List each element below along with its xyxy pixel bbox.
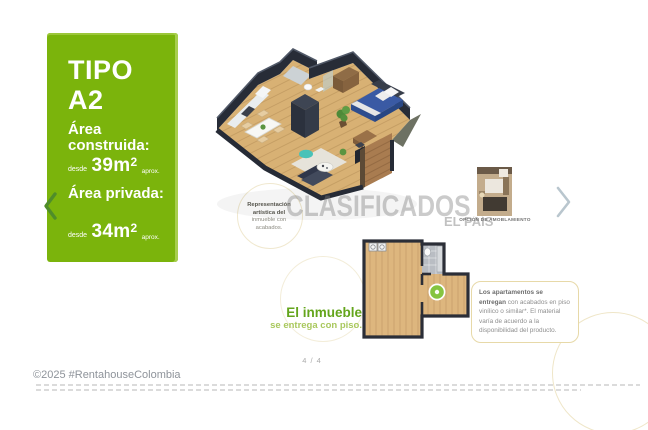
next-slide-button[interactable] bbox=[554, 185, 574, 224]
private-area-label: Área privada: bbox=[68, 186, 176, 202]
private-area-value: desde 34m2 aprox. bbox=[68, 221, 160, 243]
prev-slide-button[interactable] bbox=[42, 191, 58, 226]
hotspot-marker-icon[interactable] bbox=[429, 284, 446, 301]
unit-type-value: A2 bbox=[68, 85, 104, 116]
chevron-left-icon bbox=[42, 191, 58, 221]
copyright-text: ©2025 #RentahouseColombia bbox=[33, 369, 181, 381]
slide-pagination: 4 / 4 bbox=[286, 356, 338, 365]
gallery-slide: TIPO A2 Área construida: desde 39m2 apro… bbox=[0, 0, 648, 430]
furnishing-option-thumbnail[interactable] bbox=[477, 167, 512, 216]
unit-type-label: TIPO bbox=[68, 55, 133, 86]
built-area-value: desde 39m2 aprox. bbox=[68, 155, 160, 177]
furnished-room-photo bbox=[477, 167, 512, 216]
unit-info-panel: TIPO A2 Área construida: desde 39m2 apro… bbox=[47, 33, 178, 262]
finishes-callout: Los apartamentos se entregan con acabado… bbox=[471, 281, 579, 343]
furnishing-option-caption: OPCIÓN DE AMOBLAMIENTO bbox=[448, 217, 542, 222]
built-area-label: Área construida: bbox=[68, 122, 176, 154]
floorplan-2d bbox=[361, 238, 473, 342]
floor-delivery-note: El inmueble se entrega con piso. bbox=[246, 306, 362, 331]
fine-print-line-1 bbox=[36, 384, 640, 386]
fine-print-line-2 bbox=[36, 389, 581, 391]
chevron-right-icon bbox=[554, 185, 574, 219]
artistic-representation-caption: Representación artística del inmueble co… bbox=[236, 202, 302, 232]
